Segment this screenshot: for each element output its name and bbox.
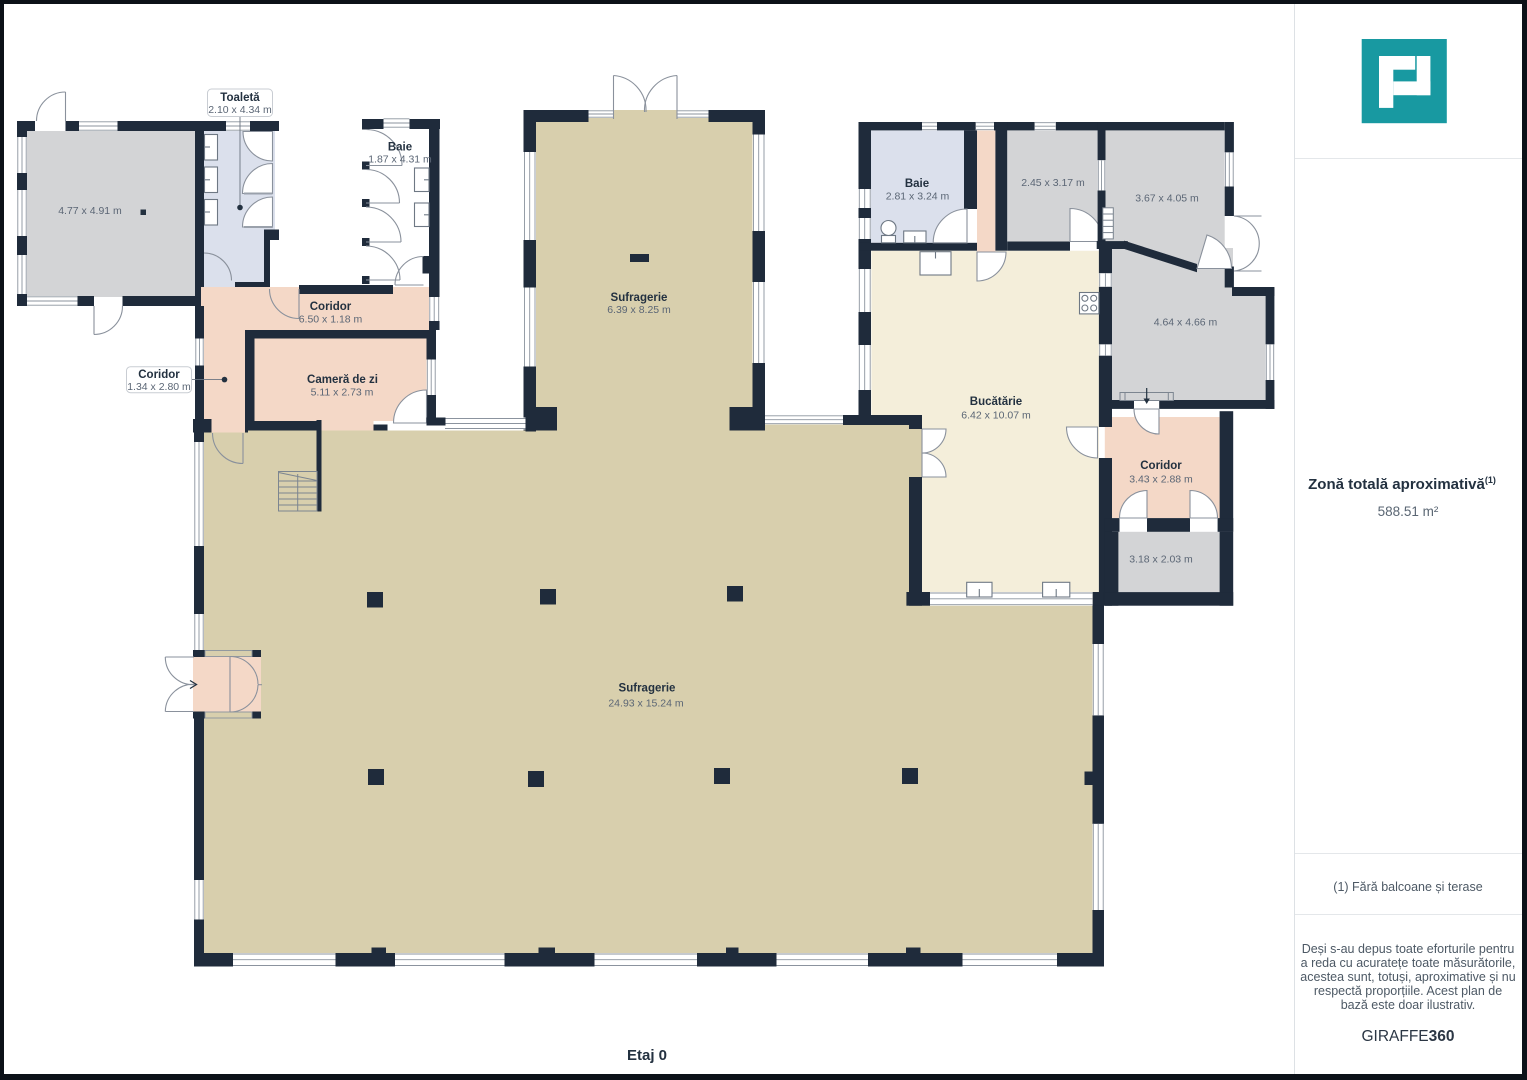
svg-text:Baie: Baie	[388, 142, 412, 154]
svg-text:Sufragerie: Sufragerie	[611, 292, 668, 304]
svg-text:4.64 x 4.66 m: 4.64 x 4.66 m	[1154, 317, 1218, 329]
svg-text:5.11 x 2.73 m: 5.11 x 2.73 m	[311, 387, 374, 399]
svg-text:(1) Fără balcoane și terase: (1) Fără balcoane și terase	[1333, 880, 1482, 894]
svg-text:3.67 x 4.05 m: 3.67 x 4.05 m	[1135, 193, 1199, 205]
svg-text:Deși s-au depus toate eforturi: Deși s-au depus toate eforturile pentru	[1302, 942, 1515, 956]
svg-text:Zonă totală aproximativă(1): Zonă totală aproximativă(1)	[1308, 475, 1496, 493]
svg-text:1.34 x 2.80 m: 1.34 x 2.80 m	[127, 381, 191, 393]
svg-text:Etaj 0: Etaj 0	[627, 1047, 667, 1064]
svg-text:6.39 x 8.25 m: 6.39 x 8.25 m	[607, 304, 671, 316]
svg-text:respectă proporțiile. Acest pl: respectă proporțiile. Acest plan de	[1314, 984, 1502, 998]
svg-text:24.93 x 15.24 m: 24.93 x 15.24 m	[608, 698, 684, 710]
svg-text:2.81 x 3.24 m: 2.81 x 3.24 m	[886, 191, 950, 203]
svg-text:2.45 x 3.17 m: 2.45 x 3.17 m	[1021, 177, 1085, 189]
svg-text:GIRAFFE360: GIRAFFE360	[1361, 1028, 1454, 1045]
svg-text:588.51 m²: 588.51 m²	[1378, 504, 1439, 519]
svg-text:Coridor: Coridor	[310, 301, 352, 313]
svg-text:Coridor: Coridor	[1140, 460, 1182, 472]
svg-text:Sufragerie: Sufragerie	[619, 683, 676, 695]
svg-text:Baie: Baie	[905, 178, 929, 190]
svg-text:6.50 x 1.18 m: 6.50 x 1.18 m	[299, 314, 363, 326]
svg-text:acestea sunt, totuși, aproxima: acestea sunt, totuși, aproximative și nu	[1300, 970, 1515, 984]
svg-text:3.18 x 2.03 m: 3.18 x 2.03 m	[1129, 554, 1193, 566]
svg-text:2.10 x 4.34 m: 2.10 x 4.34 m	[208, 104, 272, 116]
svg-text:1.87 x 4.31 m: 1.87 x 4.31 m	[368, 154, 432, 166]
svg-text:3.43 x 2.88 m: 3.43 x 2.88 m	[1129, 474, 1193, 486]
svg-text:bază este doar ilustrativ.: bază este doar ilustrativ.	[1341, 998, 1476, 1012]
svg-text:4.77 x 4.91 m: 4.77 x 4.91 m	[58, 205, 122, 217]
svg-text:6.42 x 10.07 m: 6.42 x 10.07 m	[961, 410, 1031, 422]
svg-text:Cameră de zi: Cameră de zi	[307, 374, 378, 386]
svg-text:Coridor: Coridor	[138, 369, 180, 381]
svg-text:a reda cu acuratețe toate măsu: a reda cu acuratețe toate măsurătorile,	[1301, 956, 1516, 970]
svg-text:Bucătărie: Bucătărie	[970, 396, 1022, 408]
svg-text:Toaletă: Toaletă	[220, 92, 260, 104]
